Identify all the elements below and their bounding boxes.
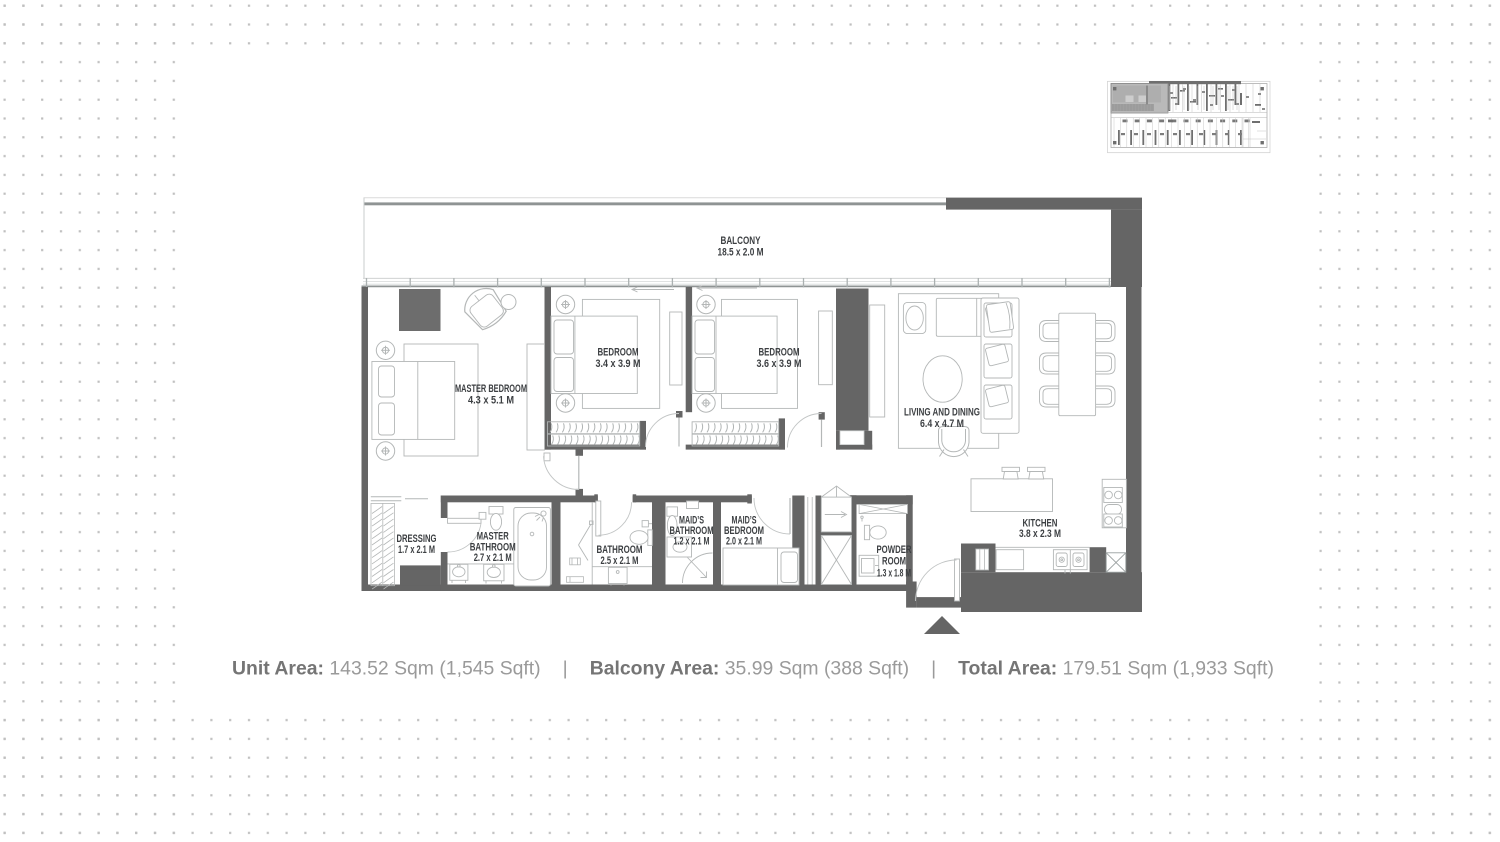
svg-text:1.7 x 2.1 M: 1.7 x 2.1 M bbox=[398, 544, 435, 556]
svg-text:1.2 x 2.1 M: 1.2 x 2.1 M bbox=[674, 536, 710, 548]
svg-text:4.3 x 5.1 M: 4.3 x 5.1 M bbox=[468, 395, 514, 407]
svg-text:BEDROOM: BEDROOM bbox=[598, 347, 639, 359]
svg-text:LIVING AND DINING: LIVING AND DINING bbox=[904, 407, 980, 419]
svg-text:2.0 x 2.1 M: 2.0 x 2.1 M bbox=[726, 536, 762, 548]
svg-text:BEDROOM: BEDROOM bbox=[759, 347, 800, 359]
svg-text:Unit Area: 143.52 Sqm (1,545 S: Unit Area: 143.52 Sqm (1,545 Sqft)|Balco… bbox=[232, 658, 1274, 680]
svg-text:POWDER: POWDER bbox=[877, 544, 912, 556]
svg-text:3.4 x 3.9 M: 3.4 x 3.9 M bbox=[596, 358, 641, 370]
svg-text:ROOM: ROOM bbox=[882, 556, 906, 568]
svg-text:6.4 x 4.7 M: 6.4 x 4.7 M bbox=[920, 418, 964, 430]
svg-text:2.7 x 2.1 M: 2.7 x 2.1 M bbox=[474, 552, 512, 564]
svg-text:3.8 x 2.3 M: 3.8 x 2.3 M bbox=[1019, 528, 1061, 540]
svg-text:BALCONY: BALCONY bbox=[721, 235, 762, 247]
svg-text:18.5 x 2.0 M: 18.5 x 2.0 M bbox=[718, 247, 764, 259]
svg-text:3.6 x 3.9 M: 3.6 x 3.9 M bbox=[757, 358, 802, 370]
svg-text:MASTER BEDROOM: MASTER BEDROOM bbox=[455, 383, 527, 395]
svg-text:1.3 x 1.8 M: 1.3 x 1.8 M bbox=[877, 568, 911, 580]
svg-text:2.5 x 2.1 M: 2.5 x 2.1 M bbox=[601, 555, 639, 567]
